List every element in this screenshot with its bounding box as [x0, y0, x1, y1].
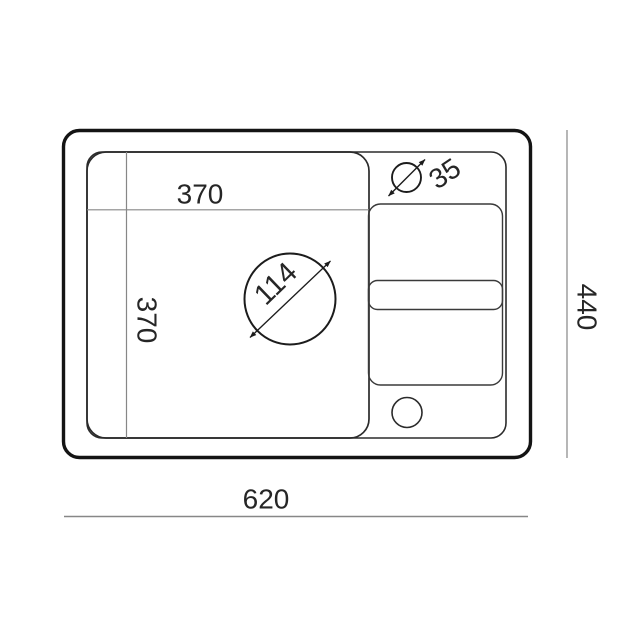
dim-bowl-depth-value: 370 [132, 297, 163, 344]
drawing-svg: 35 114 370 370 440 620 [0, 0, 625, 625]
dim-bowl-width-value: 370 [177, 179, 224, 210]
dim-overall-depth-value: 440 [572, 284, 603, 331]
dim-overall-width-value: 620 [243, 484, 290, 515]
sink-technical-drawing: 35 114 370 370 440 620 [0, 0, 625, 625]
